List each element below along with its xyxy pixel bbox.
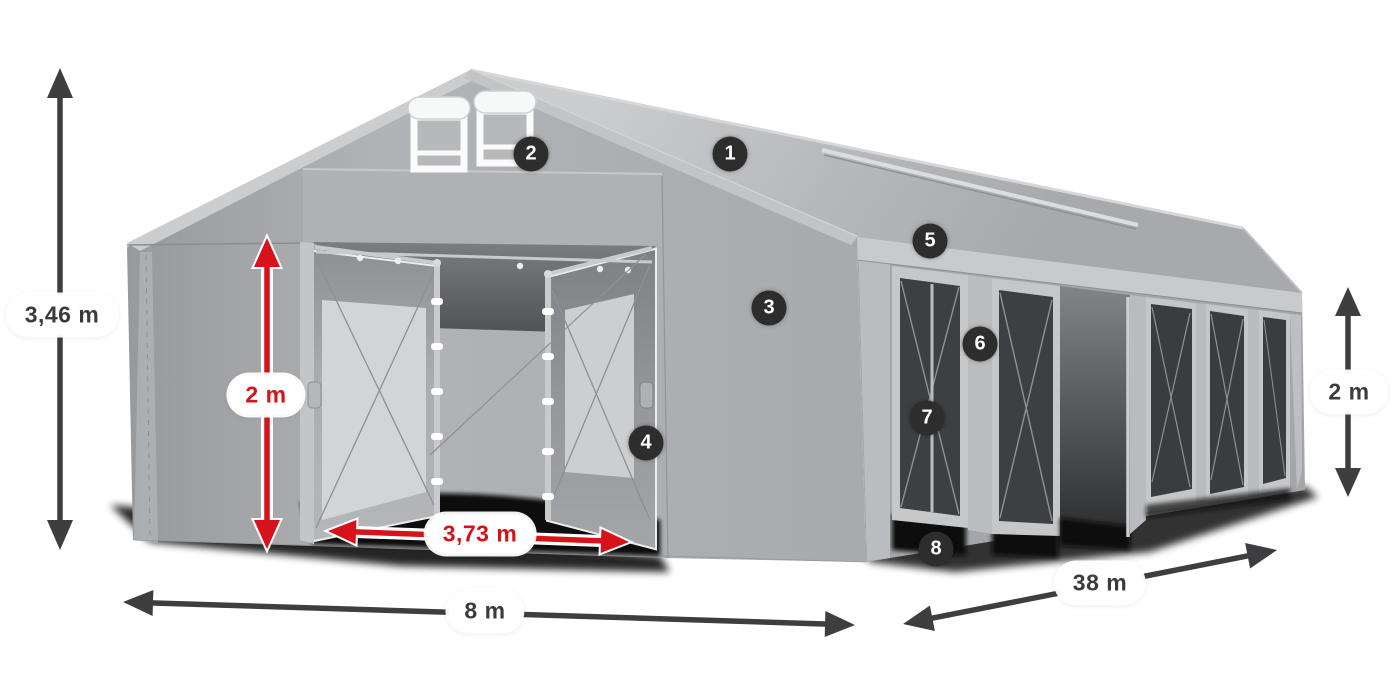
callout-5[interactable]: 5	[913, 224, 948, 259]
entrance-door-left[interactable]	[314, 247, 443, 540]
side-window-2	[992, 278, 1060, 536]
dimension-label-entrance-height: 2 m	[229, 376, 302, 415]
callout-1[interactable]: 1	[713, 137, 748, 172]
callout-3[interactable]: 3	[752, 291, 787, 326]
side-window-5	[1259, 310, 1290, 494]
callout-8[interactable]: 8	[919, 532, 954, 567]
callout-6[interactable]: 6	[963, 327, 998, 362]
dimension-label-side-length: 38 m	[1057, 564, 1143, 603]
callout-2[interactable]: 2	[514, 137, 549, 172]
tent-dimensions-diagram: 3,46 m 2 m 3,73 m 8 m 38 m 2 m 1 2 3 4 5…	[0, 0, 1400, 700]
side-window-4	[1206, 304, 1248, 503]
side-opening	[1060, 286, 1130, 550]
entrance-door-right[interactable]	[542, 248, 655, 548]
side-window-1	[892, 266, 968, 528]
callout-7[interactable]: 7	[910, 401, 945, 436]
tent-illustration	[0, 0, 1400, 700]
dimension-label-front-width: 8 m	[448, 592, 521, 631]
dimension-label-side-wall-height: 2 m	[1312, 373, 1385, 412]
vent-window-left	[408, 97, 470, 169]
callout-4[interactable]: 4	[629, 426, 664, 461]
dimension-label-total-height: 3,46 m	[9, 296, 116, 335]
entrance-header-beam	[303, 169, 662, 246]
side-window-3	[1146, 297, 1196, 512]
dimension-label-entrance-width: 3,73 m	[427, 515, 534, 554]
